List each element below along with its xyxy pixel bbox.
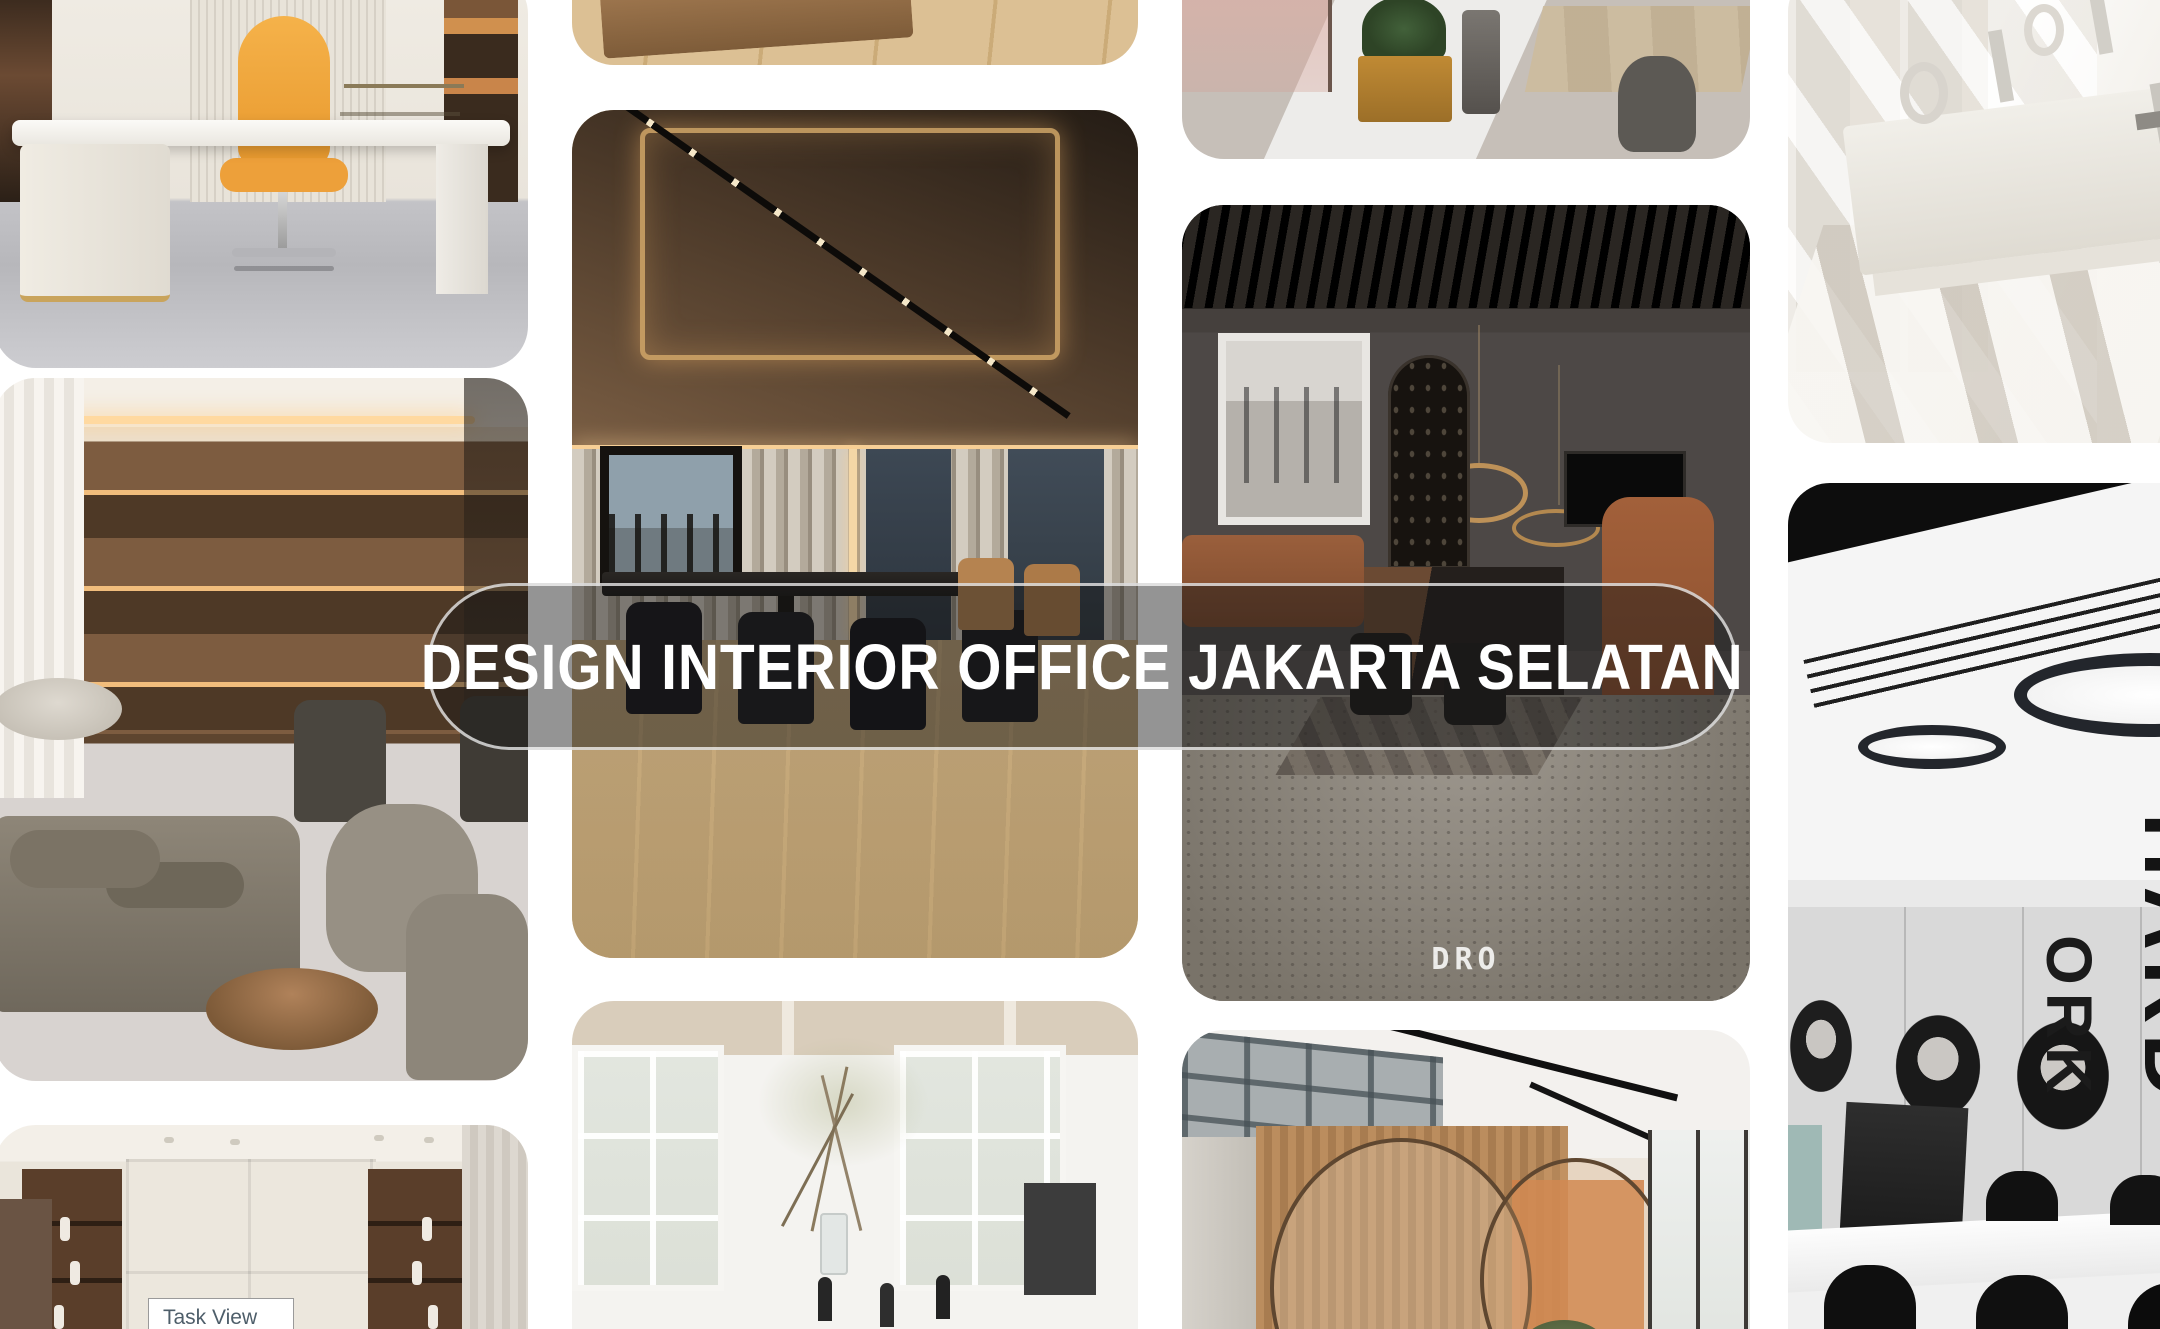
photo-timber-shelf-lounge: [0, 378, 528, 1081]
window-wall-shape: [1648, 1130, 1750, 1329]
curtain-shape: [462, 1125, 528, 1329]
banner-title: DESIGN INTERIOR OFFICE JAKARTA SELATAN: [421, 630, 1744, 704]
desktop-screenshot: DRO ORK HARD: [0, 0, 2160, 1329]
office-chair-shape: [1618, 56, 1696, 152]
pillow-shape: [10, 830, 160, 888]
glass-text-vertical: ORK: [2032, 935, 2106, 1101]
ceiling-spotlights-shape: [164, 1137, 174, 1143]
photo-white-room-branches: [572, 1001, 1138, 1329]
bronze-table-shape: [206, 968, 378, 1050]
task-view-tooltip-label: Task View: [163, 1306, 257, 1329]
display-niche-shape: [368, 1169, 464, 1329]
dark-sign-shape: [1840, 1102, 1969, 1240]
glass-vase-shape: [820, 1213, 848, 1275]
pendant-rod-shape: [1478, 325, 1480, 465]
chair-ring-shape: [2024, 4, 2064, 56]
round-ceiling-light-icon: [2014, 653, 2160, 737]
photo-sunlit-white-workstations: [1788, 0, 2160, 443]
planter-box-shape: [1358, 56, 1452, 122]
dark-art-shape: [1024, 1183, 1096, 1295]
railing-shape: [609, 514, 733, 577]
bin-shape: [1462, 10, 1500, 114]
plant-shape: [1362, 0, 1446, 62]
photo-walnut-ceiling-meeting-room: [572, 110, 1138, 958]
pink-glass-shape: [1182, 0, 1332, 92]
artwork-shape: [0, 1199, 52, 1329]
armchair-shape: [406, 894, 528, 1080]
cove-light-shape: [47, 416, 474, 424]
black-chairs-shape: [1986, 1171, 2058, 1221]
framed-art-shape: [1218, 333, 1370, 525]
figurines-shape: [818, 1277, 832, 1321]
title-banner: DESIGN INTERIOR OFFICE JAKARTA SELATAN: [427, 583, 1738, 750]
desk-shape: [12, 120, 510, 146]
vase-shape: [422, 1217, 432, 1241]
chair-seat-shape: [220, 158, 348, 192]
chair-post-shape: [278, 192, 287, 250]
bridge-art-shape: [1244, 387, 1344, 483]
cabinet-shape: [596, 0, 913, 59]
office-chair-shape: [294, 700, 386, 822]
photo-wood-floor-cabinet: [572, 0, 1138, 65]
arched-niche-shape: [1388, 355, 1470, 569]
photo-curved-glass-partitions: [1182, 1030, 1750, 1329]
drawer-cabinet-shape: [20, 144, 170, 302]
photo-monochrome-meeting-room: ORK HARD: [1788, 483, 2160, 1329]
foliage-shape: [758, 1037, 928, 1167]
slat-ceiling-shape: [1182, 205, 1750, 308]
round-ceiling-light-icon: [1858, 725, 2006, 769]
window-shape: [572, 1045, 724, 1291]
glass-text-vertical: HARD: [2124, 813, 2160, 1107]
side-table-shape: [0, 678, 122, 740]
chair-ring-shape: [1900, 62, 1948, 124]
window-shape: [600, 446, 742, 586]
vase-shape: [60, 1217, 70, 1241]
photo-open-office-planter: [1182, 0, 1750, 159]
photo-executive-desk-yellow-chair: [0, 0, 528, 368]
desk-lamp-shape: [344, 84, 464, 88]
floor-watermark-text: DRO: [1182, 942, 1750, 977]
desk-leg-shape: [436, 144, 488, 294]
concrete-pillar-shape: [1182, 1137, 1256, 1329]
chair-base-shape: [232, 248, 336, 257]
black-wedge-shape: [1788, 483, 2156, 565]
task-view-tooltip: Task View: [148, 1298, 294, 1329]
keyboard-shape: [2135, 110, 2160, 131]
